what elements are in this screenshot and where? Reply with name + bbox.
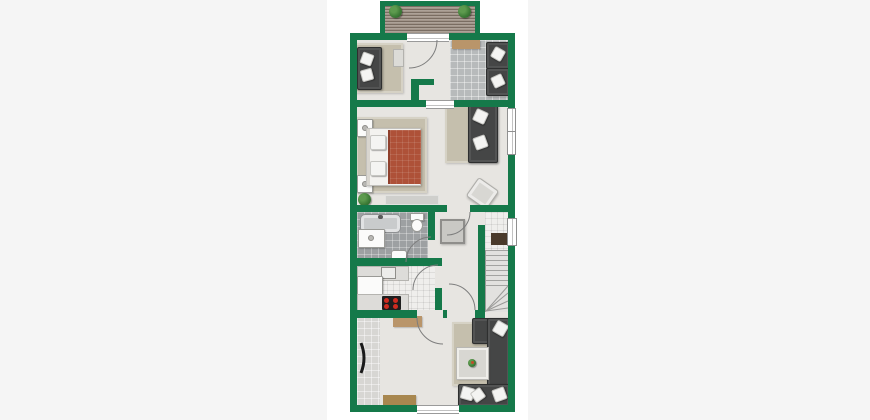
livingroom-tile-strip — [357, 314, 380, 405]
toilet-bowl-icon — [411, 219, 423, 232]
kitchen-sink — [381, 267, 396, 279]
balcony-plant-left-icon — [389, 5, 402, 18]
bedroom-window-2 — [507, 131, 516, 155]
coffee-table — [457, 348, 488, 379]
coffee-table-flower-icon — [471, 361, 474, 364]
entry-doormat — [491, 233, 508, 245]
bed-pillow-1 — [370, 135, 386, 150]
bed-blanket — [388, 130, 421, 184]
wall-livingroom-top-stub — [443, 310, 447, 318]
livingroom-mat-bottom — [383, 395, 416, 405]
bedroom-gray-rug — [385, 195, 439, 205]
wall-stairs-left — [478, 225, 485, 312]
balcony — [380, 1, 480, 33]
burner-icon — [384, 304, 389, 309]
bed-pillow-2 — [370, 161, 386, 176]
kitchen-stove — [382, 296, 401, 310]
front-door — [507, 218, 517, 246]
livingroom-window — [417, 405, 459, 414]
upper-hall-threshold — [426, 100, 454, 109]
balcony-plant-right-icon — [458, 5, 471, 18]
wall-kitchen-right — [435, 288, 442, 310]
burner-icon — [393, 298, 398, 303]
bathroom-vanity-knob-icon — [368, 235, 374, 241]
burner-icon — [393, 304, 398, 309]
office-mat — [452, 40, 480, 49]
wall-livingroom-top-right — [475, 310, 485, 318]
wall-bathroom-right — [428, 212, 435, 240]
lounge-side-table — [393, 49, 404, 67]
wall-outer-left — [350, 33, 357, 412]
wall-bedroom-divider — [357, 205, 508, 212]
bedroom-window-1 — [507, 108, 516, 132]
wall-bathroom-kitchen — [357, 258, 442, 266]
balcony-wall-right — [475, 1, 480, 33]
hallway-table — [440, 219, 465, 244]
wall-livingroom-top-left — [357, 310, 417, 318]
bed — [366, 128, 421, 186]
bedroom-hall-door-opening — [447, 205, 470, 212]
wall-lounge-stub-horizontal — [411, 79, 434, 85]
bathtub-faucet-icon — [378, 215, 383, 219]
kitchen-fridge — [357, 276, 383, 295]
staircase-winder — [485, 288, 509, 312]
balcony-door-opening — [407, 33, 449, 42]
staircase-straight-run — [485, 250, 509, 288]
burner-icon — [384, 298, 389, 303]
